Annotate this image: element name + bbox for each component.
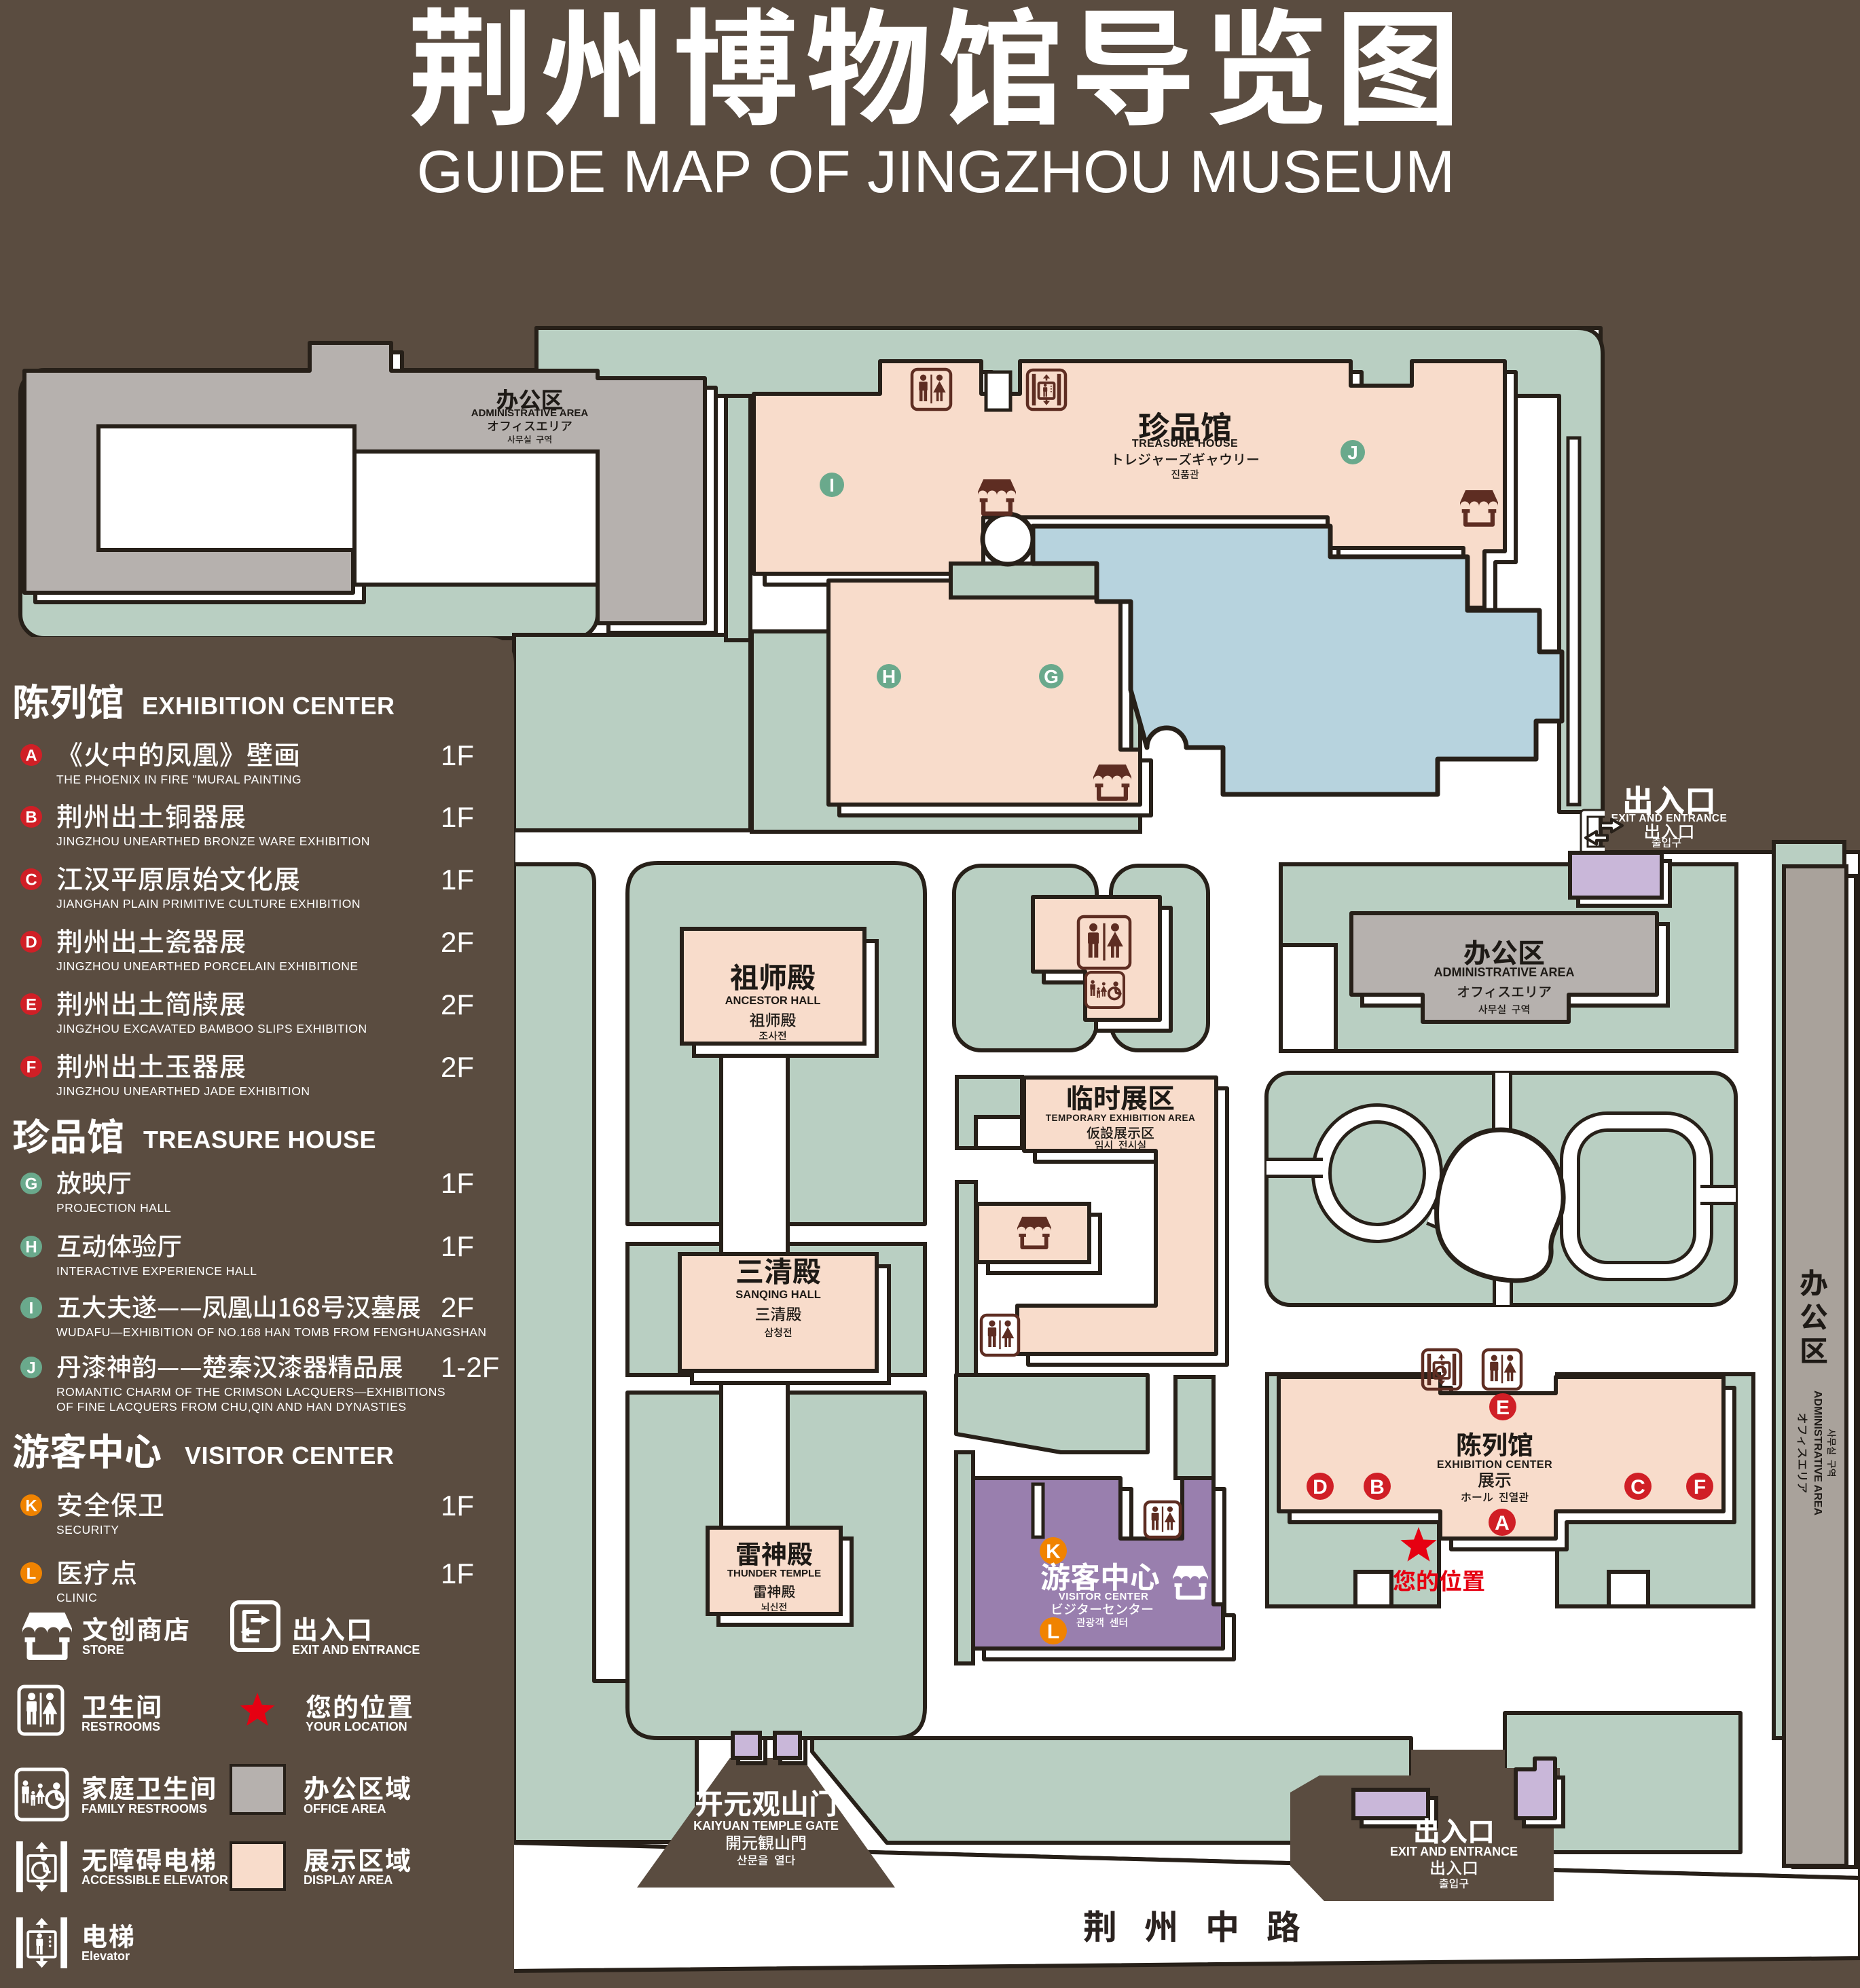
svg-text:STORE: STORE bbox=[82, 1643, 124, 1657]
svg-text:K: K bbox=[1046, 1541, 1061, 1563]
svg-text:H: H bbox=[882, 666, 896, 687]
svg-text:D: D bbox=[1313, 1476, 1328, 1498]
svg-text:A: A bbox=[1495, 1512, 1510, 1534]
svg-text:B: B bbox=[1370, 1476, 1385, 1498]
svg-text:EXIT AND ENTRANCE: EXIT AND ENTRANCE bbox=[292, 1643, 420, 1657]
svg-text:ACCESSIBLE ELEVATOR: ACCESSIBLE ELEVATOR bbox=[81, 1873, 228, 1887]
svg-text:G: G bbox=[25, 1175, 38, 1194]
svg-text:EXIT AND ENTRANCE: EXIT AND ENTRANCE bbox=[1390, 1845, 1518, 1858]
svg-text:C: C bbox=[1630, 1476, 1645, 1498]
svg-text:EXHIBITION CENTER: EXHIBITION CENTER bbox=[1437, 1459, 1552, 1471]
svg-text:SANQING HALL: SANQING HALL bbox=[735, 1289, 821, 1301]
svg-text:1F: 1F bbox=[441, 1490, 474, 1522]
svg-text:ROMANTIC CHARM OF THE CRIMSON: ROMANTIC CHARM OF THE CRIMSON LACQUERS—E… bbox=[56, 1385, 445, 1399]
svg-text:ADMINISTRATIVE AREA: ADMINISTRATIVE AREA bbox=[1812, 1391, 1823, 1515]
svg-text:G: G bbox=[1044, 666, 1059, 687]
svg-text:YOUR LOCATION: YOUR LOCATION bbox=[306, 1720, 407, 1733]
svg-text:DISPLAY AREA: DISPLAY AREA bbox=[304, 1873, 393, 1887]
svg-text:Elevator: Elevator bbox=[81, 1949, 130, 1963]
svg-text:EXIT AND ENTRANCE: EXIT AND ENTRANCE bbox=[1611, 813, 1728, 824]
svg-text:THE PHOENIX IN FIRE "MURAL PAI: THE PHOENIX IN FIRE "MURAL PAINTING bbox=[56, 773, 302, 786]
svg-text:OF FINE LACQUERS FROM CHU,QIN: OF FINE LACQUERS FROM CHU,QIN AND HAN DY… bbox=[56, 1400, 407, 1414]
svg-text:L: L bbox=[1047, 1621, 1059, 1643]
svg-text:CLINIC: CLINIC bbox=[56, 1591, 97, 1604]
svg-text:ANCESTOR HALL: ANCESTOR HALL bbox=[725, 995, 821, 1007]
svg-text:1F: 1F bbox=[441, 1167, 474, 1199]
svg-text:H: H bbox=[25, 1238, 37, 1257]
svg-text:2F: 2F bbox=[441, 926, 474, 958]
svg-text:VISITOR CENTER: VISITOR CENTER bbox=[185, 1441, 394, 1469]
svg-text:1F: 1F bbox=[441, 864, 474, 896]
svg-text:1F: 1F bbox=[441, 1230, 474, 1262]
svg-text:2F: 2F bbox=[441, 989, 474, 1020]
svg-text:KAIYUAN TEMPLE GATE: KAIYUAN TEMPLE GATE bbox=[693, 1819, 839, 1833]
svg-text:JINGZHOU EXCAVATED BAMBOO SLIP: JINGZHOU EXCAVATED BAMBOO SLIPS EXHIBITI… bbox=[56, 1022, 367, 1035]
svg-text:RESTROOMS: RESTROOMS bbox=[81, 1720, 160, 1733]
svg-text:ADMINISTRATIVE AREA: ADMINISTRATIVE AREA bbox=[471, 407, 589, 419]
svg-text:K: K bbox=[25, 1497, 37, 1515]
svg-text:L: L bbox=[26, 1565, 37, 1583]
svg-text:F: F bbox=[26, 1059, 37, 1077]
svg-text:1-2F: 1-2F bbox=[441, 1351, 499, 1383]
svg-text:FAMILY RESTROOMS: FAMILY RESTROOMS bbox=[81, 1802, 207, 1816]
svg-text:JINGZHOU UNEARTHED PORCELAIN E: JINGZHOU UNEARTHED PORCELAIN EXHIBITIONE bbox=[56, 959, 359, 973]
svg-text:I: I bbox=[829, 475, 835, 496]
svg-text:ADMINISTRATIVE AREA: ADMINISTRATIVE AREA bbox=[1434, 965, 1575, 979]
svg-text:SECURITY: SECURITY bbox=[56, 1523, 119, 1536]
svg-text:1F: 1F bbox=[441, 739, 474, 771]
svg-text:OFFICE AREA: OFFICE AREA bbox=[304, 1802, 386, 1816]
svg-text:2F: 2F bbox=[441, 1291, 474, 1323]
svg-text:TEMPORARY EXHIBITION AREA: TEMPORARY EXHIBITION AREA bbox=[1046, 1113, 1196, 1123]
svg-text:2F: 2F bbox=[441, 1051, 474, 1083]
svg-text:J: J bbox=[26, 1359, 35, 1378]
svg-text:WUDAFU—EXHIBITION OF NO.168 HA: WUDAFU—EXHIBITION OF NO.168 HAN TOMB FRO… bbox=[56, 1325, 487, 1339]
svg-text:INTERACTIVE EXPERIENCE HALL: INTERACTIVE EXPERIENCE HALL bbox=[56, 1264, 257, 1278]
svg-text:JIANGHAN PLAIN PRIMITIVE CULTU: JIANGHAN PLAIN PRIMITIVE CULTURE EXHIBIT… bbox=[56, 897, 361, 910]
svg-text:1F: 1F bbox=[441, 1558, 474, 1589]
svg-text:I: I bbox=[29, 1300, 34, 1318]
svg-text:A: A bbox=[25, 747, 37, 765]
svg-text:GUIDE MAP OF JINGZHOU MUSEUM: GUIDE MAP OF JINGZHOU MUSEUM bbox=[417, 138, 1455, 205]
svg-text:E: E bbox=[26, 996, 37, 1014]
svg-text:EXHIBITION CENTER: EXHIBITION CENTER bbox=[142, 692, 395, 720]
svg-text:D: D bbox=[25, 934, 37, 952]
svg-text:JINGZHOU UNEARTHED BRONZE WARE: JINGZHOU UNEARTHED BRONZE WARE EXHIBITIO… bbox=[56, 834, 370, 848]
svg-text:THUNDER TEMPLE: THUNDER TEMPLE bbox=[727, 1568, 821, 1579]
svg-text:TREASURE HOUSE: TREASURE HOUSE bbox=[143, 1126, 376, 1154]
svg-text:TREASURE HOUSE: TREASURE HOUSE bbox=[1132, 438, 1238, 449]
svg-text:1F: 1F bbox=[441, 801, 474, 833]
svg-text:PROJECTION HALL: PROJECTION HALL bbox=[56, 1201, 171, 1215]
svg-text:C: C bbox=[25, 871, 37, 889]
svg-text:F: F bbox=[1694, 1476, 1706, 1498]
svg-text:JINGZHOU UNEARTHED JADE EXHIBI: JINGZHOU UNEARTHED JADE EXHIBITION bbox=[56, 1084, 310, 1098]
svg-text:B: B bbox=[25, 809, 37, 827]
svg-text:VISITOR CENTER: VISITOR CENTER bbox=[1059, 1591, 1149, 1602]
svg-text:E: E bbox=[1496, 1397, 1510, 1419]
svg-text:J: J bbox=[1347, 442, 1358, 463]
